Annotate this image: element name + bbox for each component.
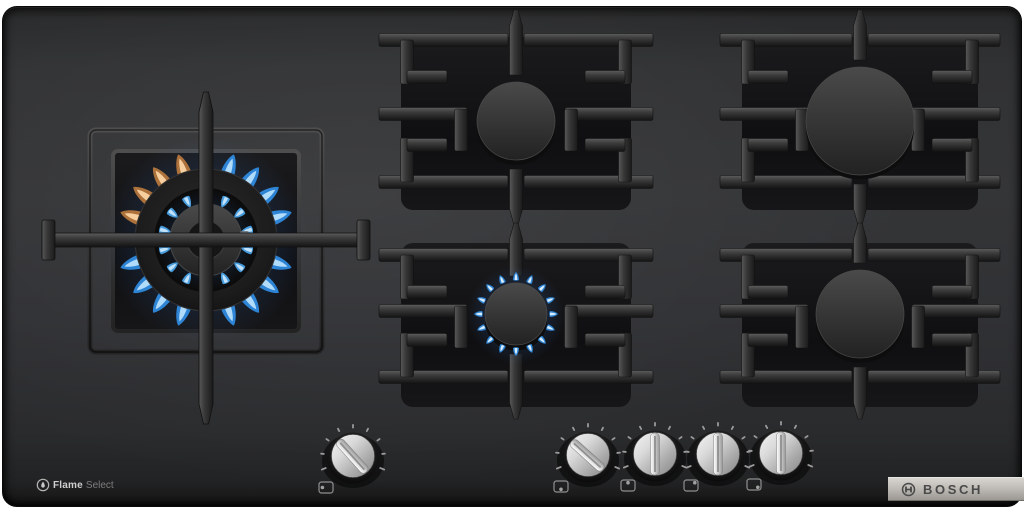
burner-position-icon [621,480,635,491]
grate-bar [565,305,653,318]
knob-scale-tick [611,437,616,441]
grate-bar [868,34,1000,47]
knob-scale-tick [765,424,769,429]
grate-bar [720,249,852,262]
knob-scale-tick [794,424,798,429]
bosch-armature-icon [901,482,916,497]
grate-bar [932,334,972,347]
burner-position-icon [747,479,761,490]
knob-scale-tick [741,436,746,440]
grate-bar [565,306,578,348]
grate-bar [510,169,523,225]
grate-bar [748,286,788,299]
grate-bar [524,249,653,262]
flameselect-label-light: Select [86,480,114,491]
knob-scale-tick [780,421,782,426]
grate-bar [720,371,852,384]
grate-bar [932,71,972,84]
grate-bar [912,108,1000,121]
grate-bar [524,176,653,189]
grate-bar [932,139,972,152]
knob-scale-tick [654,422,656,427]
knob-scale-tick [804,435,809,439]
grate-bar [407,71,447,84]
cooking-zone-left-wok [42,92,370,424]
grate-bar [796,306,809,348]
grate-bar [912,305,1000,318]
grate-bar [565,109,578,151]
knob-scale-tick [376,438,381,442]
grate-bar [510,10,523,75]
grate-bar [455,109,468,151]
grate-bar [720,176,852,189]
bosch-wordmark: BOSCH [923,482,983,497]
grate-bar [585,334,625,347]
burner-cap [806,67,914,175]
grate-bar [868,176,1000,189]
knob-scale-tick [690,436,695,440]
knob-top-middle[interactable] [621,422,688,491]
burner-cap [816,270,904,358]
knob-bottom-middle[interactable] [554,423,621,492]
hob-scene [0,0,1024,515]
grate-bar [524,371,653,384]
burner-cap [477,82,555,160]
grate-bar [868,249,1000,262]
knob-scale-tick [366,427,370,432]
grate-bar [854,367,867,419]
burner-position-icon [684,480,698,491]
grate-bar [854,10,867,60]
knob-scale-tick [587,423,589,428]
grate-bar [912,306,925,348]
grate-bar [379,34,508,47]
burner-position-icon [554,481,568,492]
grate-bar [407,286,447,299]
grate-bar [720,34,852,47]
grate-bar [379,305,467,318]
grate-bar [720,108,808,121]
grate-bar [748,71,788,84]
flameselect-label-bold: Flame [53,480,83,491]
grate-bar [748,139,788,152]
knob-pointer [714,433,723,475]
knob-scale-tick [337,427,341,432]
grate-bar [868,371,1000,384]
knob-scale-tick [560,437,565,441]
cooking-zone-bottom-middle [379,223,653,419]
grate-bar-horizontal [50,233,362,247]
knob-pointer [651,433,660,475]
grate-bar [585,286,625,299]
grate-bar [407,139,447,152]
burner-position-icon [319,482,333,493]
grate-bar [585,71,625,84]
burner-cap [485,283,547,345]
knob-scale-tick [601,426,605,431]
knob-left-wok[interactable] [319,424,386,493]
knob-scale-tick [572,426,576,431]
grate-bar [524,34,653,47]
grate-bar [455,306,468,348]
grate-bar [854,223,867,263]
flameselect-logo: FlameSelect [36,477,114,493]
knob-scale-tick [702,425,706,430]
knob-scale-tick [627,436,632,440]
knob-scale-tick [753,435,758,439]
gas-hob-product-photo: FlameSelect BOSCH [0,0,1024,515]
grate-bar [565,108,653,121]
knob-top-right[interactable] [684,422,751,491]
grate-bar [407,334,447,347]
knob-scale-tick [731,425,735,430]
knob-scale-tick [325,438,330,442]
grate-bar [748,334,788,347]
knob-scale-tick [717,422,719,427]
knob-pointer [777,432,786,474]
cooking-zone-top-right [720,10,1000,225]
knob-scale-tick [352,424,354,429]
grate-bar-vertical [199,92,213,424]
knob-scale-tick [668,425,672,430]
knob-scale-tick [678,436,683,440]
bosch-logo-bar: BOSCH [888,477,1024,501]
knob-scale-tick [639,425,643,430]
flame-in-circle-icon [36,478,50,492]
knob-bottom-right[interactable] [747,421,814,490]
grate-bar [379,249,508,262]
grate-bar [585,139,625,152]
grate-bar [379,108,467,121]
grate-bar [379,371,508,384]
grate-bar [854,184,867,225]
cooking-zone-top-middle [379,10,653,225]
cooking-zone-bottom-right [720,223,1000,419]
grate-bar [932,286,972,299]
grate-bar [720,305,808,318]
grate-bar [379,176,508,189]
